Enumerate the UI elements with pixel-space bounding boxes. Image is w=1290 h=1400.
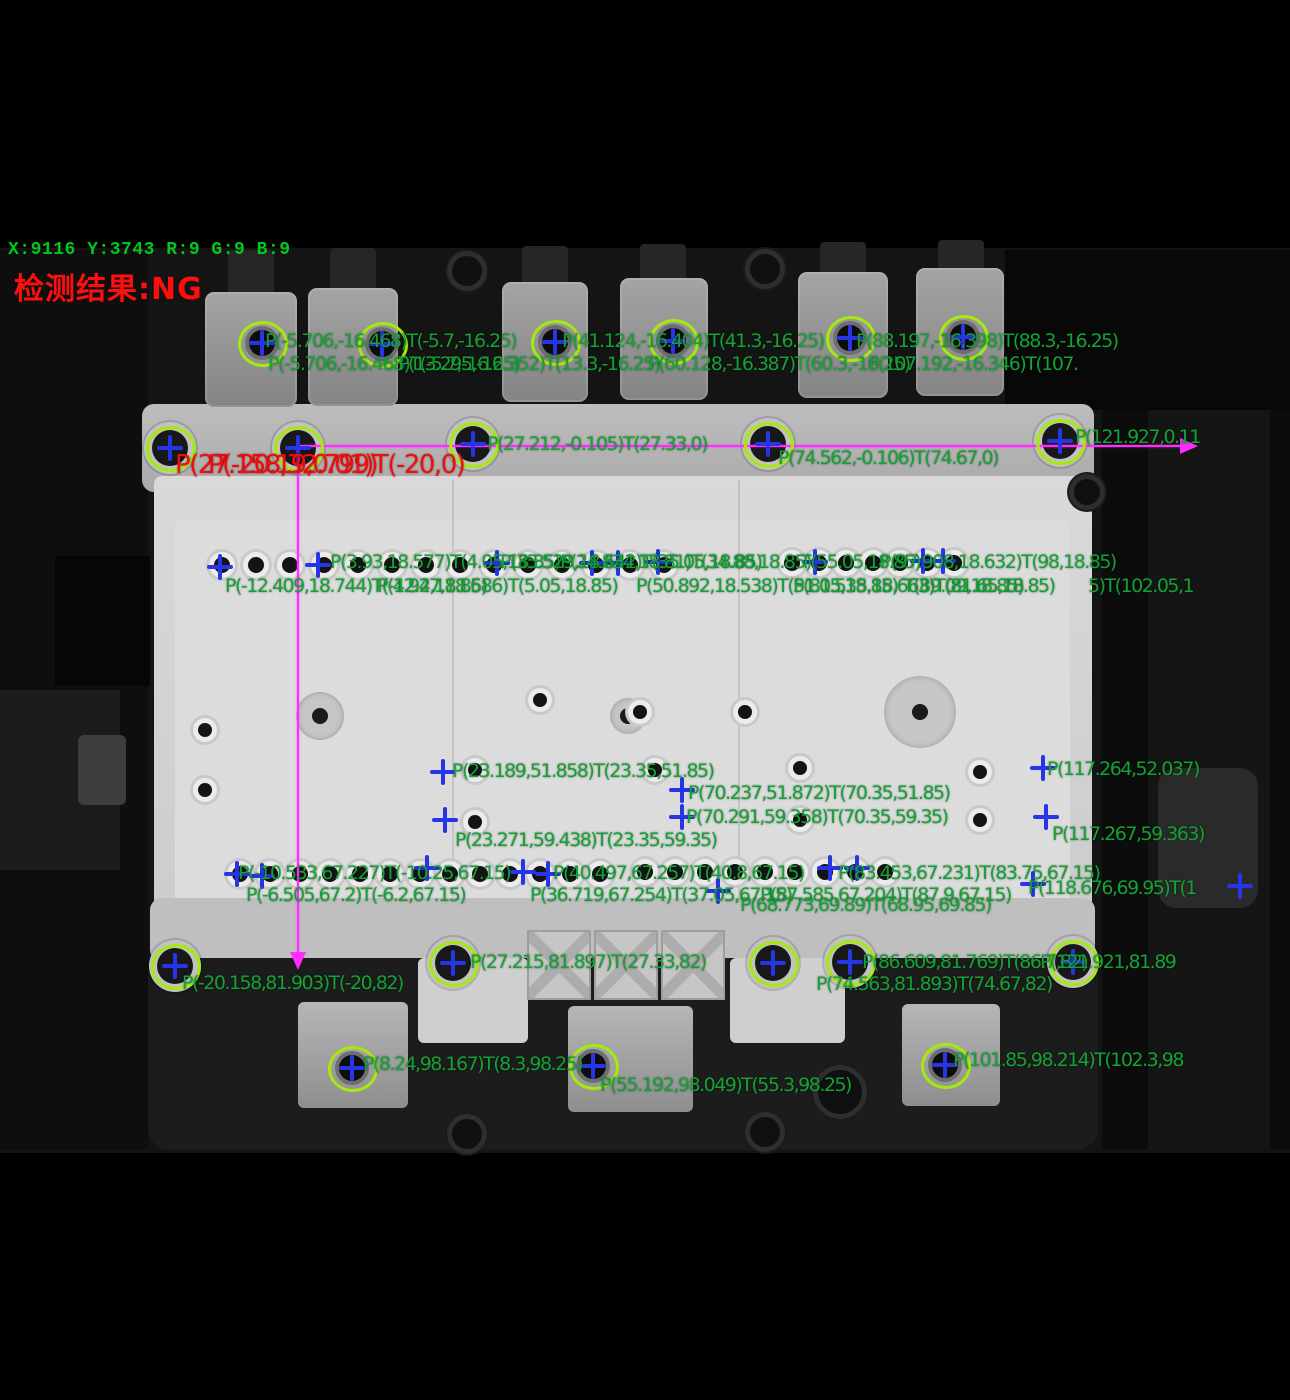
module-seam-2	[738, 480, 740, 958]
pin-hole	[554, 557, 570, 573]
fixture-right-panel	[1148, 370, 1270, 1150]
pin-hole	[248, 557, 264, 573]
pin-hole	[667, 864, 683, 880]
pin-hole	[468, 763, 482, 777]
pin-hole	[418, 557, 434, 573]
pixel-status-readout: X:9116 Y:3743 R:9 G:9 B:9	[8, 240, 291, 260]
pin-hole	[198, 723, 212, 737]
pin-hole	[973, 765, 987, 779]
pin-hole	[946, 555, 962, 571]
pin-hole	[892, 555, 908, 571]
flange-lattice	[661, 930, 725, 1000]
inspection-viewport: P(-5.706,-16.468)T(-5.7,-16.25)P(41.124,…	[0, 0, 1290, 1400]
screw	[452, 1119, 482, 1149]
measure-line-vertical	[297, 447, 299, 952]
pin-hole	[472, 866, 488, 882]
pin-hole	[442, 866, 458, 882]
pin-hole	[468, 815, 482, 829]
pin-hole	[865, 555, 881, 571]
pin-hole	[784, 555, 800, 571]
screw	[452, 256, 482, 286]
pin-hole	[622, 557, 638, 573]
pin-hole	[533, 693, 547, 707]
pin-hole	[382, 866, 398, 882]
fixture-top-right-shadow	[1005, 250, 1290, 410]
measure-arrow-right	[1180, 438, 1198, 454]
flange-lattice	[527, 930, 591, 1000]
pin-hole	[877, 864, 893, 880]
pin-hole	[502, 866, 518, 882]
pin-hole	[520, 557, 536, 573]
pin-hole	[973, 813, 987, 827]
pin-hole	[282, 557, 298, 573]
pin-hole	[452, 557, 468, 573]
flange-lattice	[594, 930, 658, 1000]
pin-hole	[198, 783, 212, 797]
fixture-left-clip	[78, 735, 126, 805]
pin-hole	[637, 864, 653, 880]
screw	[750, 1117, 780, 1147]
screw	[1074, 479, 1100, 505]
screw	[750, 254, 780, 284]
pin-hole	[738, 705, 752, 719]
screw	[818, 1070, 862, 1114]
pin-hole	[322, 866, 338, 882]
boss-hole	[312, 708, 328, 724]
measure-arrow-down	[290, 952, 306, 970]
pin-hole	[787, 864, 803, 880]
pin-hole	[727, 864, 743, 880]
boss-hole	[912, 704, 928, 720]
pin-hole	[486, 557, 502, 573]
pin-hole	[648, 763, 662, 777]
pin-hole	[757, 864, 773, 880]
pin-hole	[633, 705, 647, 719]
pin-hole	[592, 866, 608, 882]
pin-hole	[838, 555, 854, 571]
pin-hole	[292, 866, 308, 882]
pin-hole	[352, 866, 368, 882]
fixture-left-arm	[55, 556, 150, 686]
inspection-result-banner: 检测结果:NG	[14, 264, 203, 308]
module-seam-1	[452, 480, 454, 958]
pin-hole	[384, 557, 400, 573]
pin-hole	[562, 866, 578, 882]
pin-hole	[793, 761, 807, 775]
pin-hole	[697, 864, 713, 880]
pin-hole	[350, 557, 366, 573]
pin-hole	[793, 813, 807, 827]
